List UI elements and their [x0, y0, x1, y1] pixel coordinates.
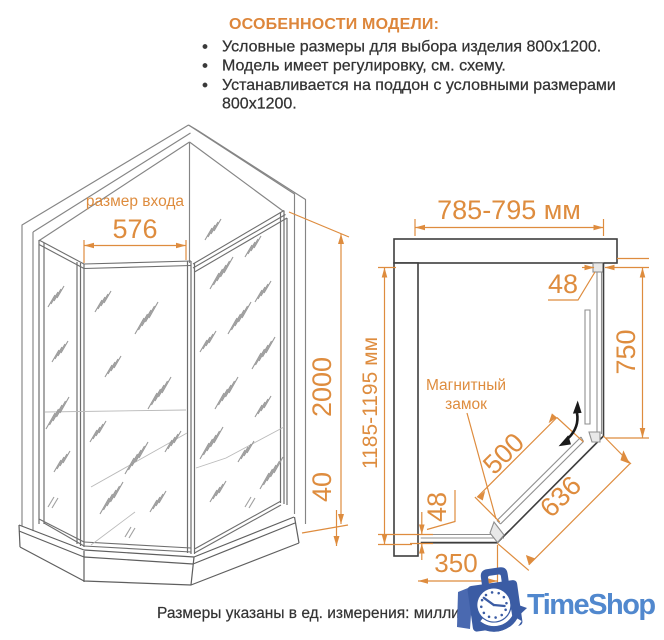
svg-text:48: 48 — [548, 269, 578, 299]
svg-text:576: 576 — [112, 214, 157, 244]
svg-text:785-795 мм: 785-795 мм — [437, 195, 581, 225]
svg-text:размер входа: размер входа — [86, 193, 185, 210]
svg-text:Устанавливается на поддон с ус: Устанавливается на поддон с условными ра… — [222, 77, 616, 94]
svg-text:ОСОБЕННОСТИ МОДЕЛИ:: ОСОБЕННОСТИ МОДЕЛИ: — [229, 16, 439, 33]
svg-text:750: 750 — [611, 329, 641, 374]
svg-text:2000: 2000 — [307, 357, 337, 417]
svg-text:500: 500 — [477, 427, 530, 480]
svg-text:800х1200.: 800х1200. — [222, 96, 297, 113]
svg-text:350: 350 — [434, 548, 477, 578]
svg-text:Магнитный: Магнитный — [426, 377, 506, 394]
svg-text:1185-1195 мм: 1185-1195 мм — [359, 337, 382, 469]
svg-text:40: 40 — [307, 472, 337, 502]
svg-text:Размеры указаны в ед. измерени: Размеры указаны в ед. измерения: миллиме… — [157, 605, 494, 622]
svg-text:Условные размеры для выбора из: Условные размеры для выбора изделия 800х… — [222, 39, 601, 56]
svg-text:48: 48 — [422, 492, 452, 522]
svg-text:TimeShop: TimeShop — [527, 589, 655, 621]
svg-text:Модель имеет регулировку, см.: Модель имеет регулировку, см. схему. — [222, 58, 506, 75]
svg-text:замок: замок — [445, 396, 487, 413]
